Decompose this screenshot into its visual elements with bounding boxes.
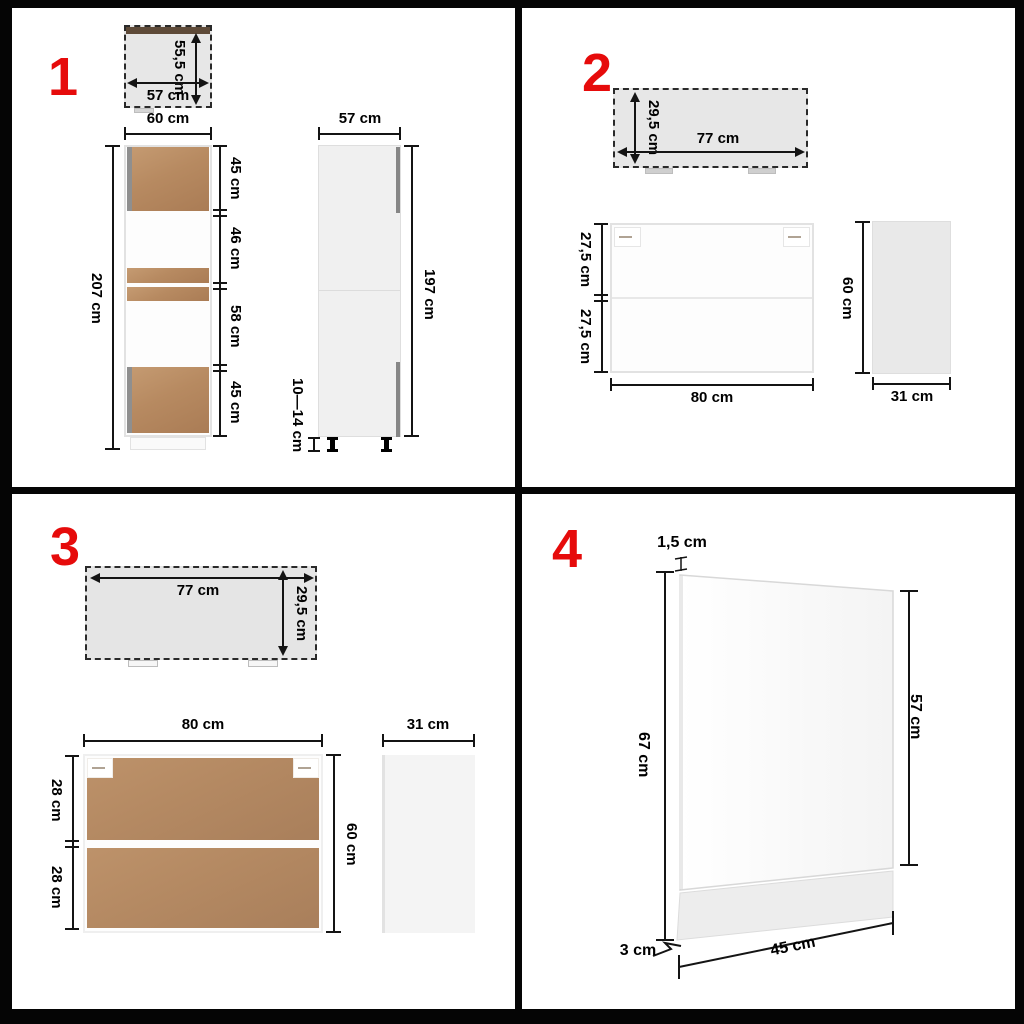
dim-tick <box>675 569 687 571</box>
arrow-up-icon <box>191 33 201 43</box>
dim-tick <box>210 127 212 140</box>
q4-right-height-label: 57 cm <box>906 686 924 748</box>
q2-side-height-label: 60 cm <box>838 267 856 329</box>
q1-leg-height-label: 10—14 cm <box>288 378 306 452</box>
arrow-left-icon <box>617 147 627 157</box>
q1-front-width-dim <box>124 133 212 135</box>
dim-tick <box>213 370 227 372</box>
q4-panel-face <box>680 575 893 890</box>
dim-tick <box>594 223 608 225</box>
arrow-right-icon <box>795 147 805 157</box>
dim-tick <box>594 300 608 302</box>
q1-top-width-label: 57 cm <box>138 88 198 105</box>
q1-bottom-door-edge <box>127 367 132 433</box>
dim-tick <box>318 127 320 140</box>
q2-front-width-dim <box>610 384 814 386</box>
q2-side-view <box>872 221 951 374</box>
dim-tick <box>949 377 951 390</box>
dim-tick <box>65 755 79 757</box>
dim-tick <box>213 282 227 284</box>
dim-tick <box>83 734 85 747</box>
q1-leg-back <box>381 437 392 452</box>
q4-thickness-label: 1,5 cm <box>652 534 712 552</box>
q4-panel-drawing <box>523 493 1016 1013</box>
dim-tick <box>675 557 687 559</box>
dim-tick <box>213 435 227 437</box>
frame-top <box>0 0 1024 8</box>
q1-side-rail-bottom <box>396 362 400 437</box>
q1-height-dim <box>112 145 114 450</box>
q1-seg-label-1: 45 cm <box>226 148 244 208</box>
q3-front-height-dim <box>333 754 335 933</box>
q2-topwidth-dim <box>622 151 800 153</box>
dim-tick <box>382 734 384 747</box>
dim-tick <box>855 221 870 223</box>
q1-side-width-label: 57 cm <box>330 111 390 128</box>
dim-tick <box>65 840 79 842</box>
q2-hanging-bracket-left <box>614 227 641 247</box>
q3-topwidth-dim <box>95 577 309 579</box>
q1-seg-label-2: 46 cm <box>226 218 244 278</box>
q3-side-view <box>382 755 475 933</box>
dim-tick <box>326 931 341 933</box>
dim-tick <box>594 294 608 296</box>
dim-tick <box>124 127 126 140</box>
arrow-down-icon <box>630 154 640 164</box>
q1-topwidth-dim-line <box>131 82 205 84</box>
divider-vertical <box>515 0 522 1024</box>
quadrant-2-number: 2 <box>582 46 612 100</box>
q1-drawer-front-upper <box>127 268 209 283</box>
q3-seg-label-2: 28 cm <box>47 857 65 917</box>
q1-side-height-label: 197 cm <box>420 262 438 326</box>
dim-tick <box>812 378 814 391</box>
q1-side-rail-top <box>396 147 400 213</box>
arrow-down-icon <box>278 646 288 656</box>
q2-seg-label-1: 27,5 cm <box>576 226 594 294</box>
q3-top-view-tab-right <box>248 660 278 667</box>
q1-seg-chain <box>219 145 221 437</box>
q2-top-width-label: 77 cm <box>688 131 748 148</box>
q3-seg-chain <box>72 755 74 930</box>
arrow-up-icon <box>630 92 640 102</box>
q3-front-height-label: 60 cm <box>342 813 360 875</box>
dim-tick <box>213 364 227 366</box>
dim-tick <box>213 145 227 147</box>
q3-top-width-label: 77 cm <box>168 583 228 600</box>
arrow-up-icon <box>278 570 288 580</box>
dim-tick <box>65 928 79 930</box>
q1-front-width-label: 60 cm <box>138 111 198 128</box>
dim-tick <box>213 288 227 290</box>
q2-depth-dim <box>634 97 636 159</box>
q1-seg-label-3: 58 cm <box>226 296 244 356</box>
q2-top-view <box>613 88 808 168</box>
q3-front-width-label: 80 cm <box>173 717 233 734</box>
dim-tick <box>594 371 608 373</box>
quadrant-1-number: 1 <box>48 50 78 104</box>
q3-seg-label-1: 28 cm <box>47 770 65 830</box>
q1-seg-label-4: 45 cm <box>226 372 244 432</box>
q1-side-width-dim <box>318 133 401 135</box>
q2-top-view-tab-right <box>748 168 776 174</box>
dim-tick <box>213 209 227 211</box>
q3-front-width-dim <box>83 740 323 742</box>
q1-side-view <box>318 145 401 437</box>
arrow-right-icon <box>199 78 209 88</box>
q1-bottom-door <box>127 367 209 433</box>
q3-depth-dim <box>282 575 284 651</box>
q3-hanging-bracket-right <box>293 758 319 778</box>
arrow-left-icon <box>127 78 137 88</box>
q2-hanging-bracket-right <box>783 227 810 247</box>
dim-tick <box>872 377 874 390</box>
q1-front-height-label: 207 cm <box>87 267 105 329</box>
dim-tick <box>321 734 323 747</box>
dim-tick <box>610 378 612 391</box>
dim-tick <box>213 215 227 217</box>
dim-tick <box>855 372 870 374</box>
q3-top-view-tab-left <box>128 660 158 667</box>
q3-top-door <box>87 758 319 840</box>
product-dimension-sheet: 1 55,5 cm 57 cm 60 cm 207 cm 45 cm 46 cm… <box>0 0 1024 1024</box>
q2-side-height-dim <box>862 221 864 374</box>
q1-plinth <box>130 437 206 450</box>
q4-plinth-label: 3 cm <box>608 942 668 960</box>
q1-top-door-edge <box>127 147 132 211</box>
frame-left <box>0 0 12 1024</box>
q2-front-divider <box>612 297 812 299</box>
q4-left-height-label: 67 cm <box>634 724 652 786</box>
q3-side-width-dim <box>382 740 475 742</box>
dim-tick <box>404 435 419 437</box>
q2-front-width-label: 80 cm <box>682 390 742 407</box>
dim-tick <box>308 437 320 439</box>
q3-hanging-bracket-left <box>87 758 113 778</box>
dim-tick <box>65 846 79 848</box>
q1-side-divider <box>319 290 400 291</box>
dim-tick <box>473 734 475 747</box>
q2-top-view-tab-left <box>645 168 673 174</box>
q3-side-width-label: 31 cm <box>398 717 458 734</box>
q3-bottom-door <box>87 848 319 928</box>
q2-side-width-dim <box>872 383 951 385</box>
q2-side-width-label: 31 cm <box>882 389 942 406</box>
q1-side-height-dim <box>411 145 413 437</box>
dim-tick <box>105 145 120 147</box>
dim-tick <box>105 448 120 450</box>
q1-top-door <box>127 147 209 211</box>
q3-top-depth-label: 29,5 cm <box>292 578 310 650</box>
q1-leg-front <box>327 437 338 452</box>
dim-tick <box>404 145 419 147</box>
dim-tick <box>308 450 320 452</box>
dim-tick <box>399 127 401 140</box>
q1-drawer-front-lower <box>127 287 209 301</box>
q2-seg-chain <box>601 223 603 373</box>
arrow-left-icon <box>90 573 100 583</box>
frame-bottom <box>0 1009 1024 1024</box>
frame-right <box>1015 0 1024 1024</box>
q2-seg-label-2: 27,5 cm <box>576 303 594 371</box>
divider-horizontal <box>0 487 1024 494</box>
dim-tick <box>326 754 341 756</box>
quadrant-3-number: 3 <box>50 520 80 574</box>
